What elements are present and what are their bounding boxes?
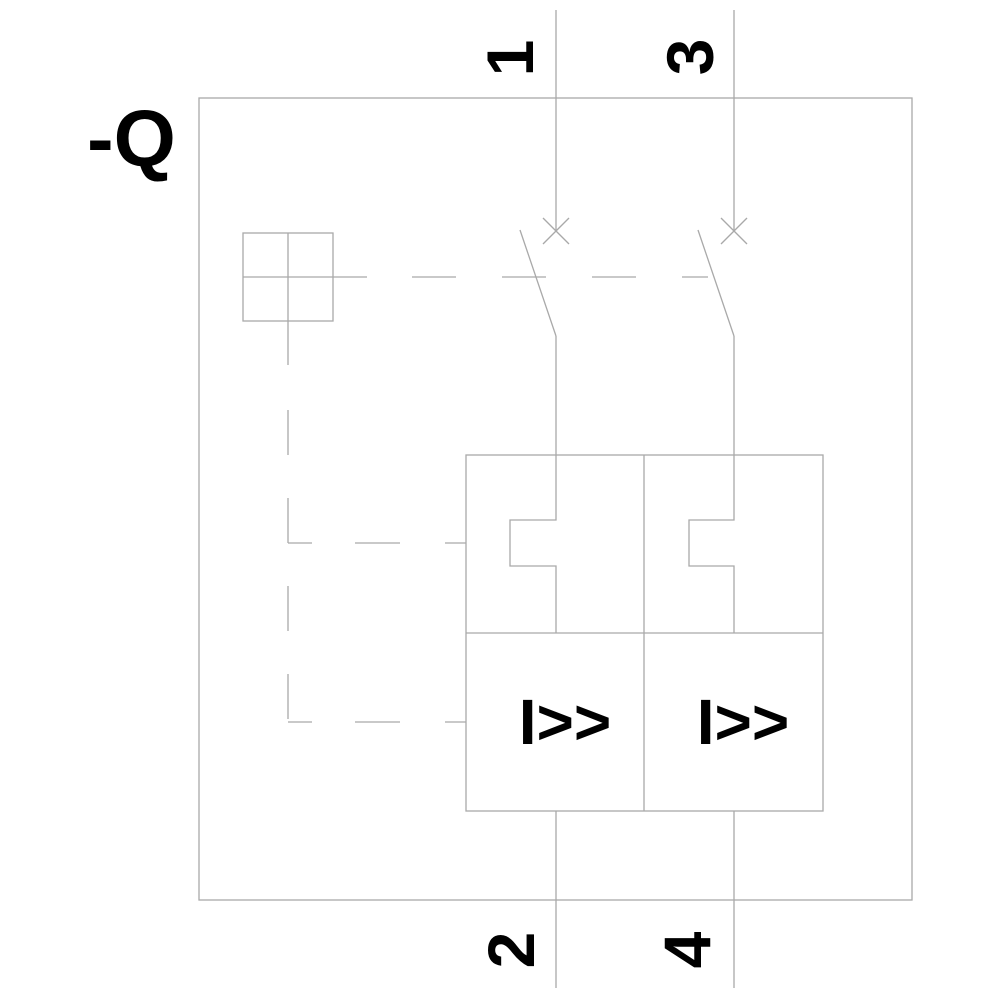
pole2-switch-blade (698, 230, 734, 336)
labels: -Q 1 3 2 4 I>> I>> (87, 39, 789, 969)
pole1-switch-blade (520, 230, 556, 336)
circuit-breaker-schematic: -Q 1 3 2 4 I>> I>> (0, 0, 1000, 1000)
terminal-label-4: 4 (650, 931, 724, 968)
pole-1 (510, 10, 569, 988)
overcurrent-release-label-1: I>> (519, 686, 612, 758)
terminal-label-3: 3 (653, 39, 727, 76)
linework (199, 10, 912, 988)
device-designation-label: -Q (87, 94, 176, 183)
terminal-label-1: 1 (473, 40, 547, 77)
pole-2 (689, 10, 747, 988)
terminal-label-2: 2 (474, 932, 548, 969)
mechanical-linkage (288, 277, 708, 722)
pole1-thermal-notch-conductor (510, 455, 556, 633)
actuator-symbol (243, 233, 367, 365)
overcurrent-release-label-2: I>> (697, 686, 790, 758)
circuit-diagram-svg: -Q 1 3 2 4 I>> I>> (0, 0, 1000, 1000)
pole2-thermal-notch-conductor (689, 455, 734, 633)
